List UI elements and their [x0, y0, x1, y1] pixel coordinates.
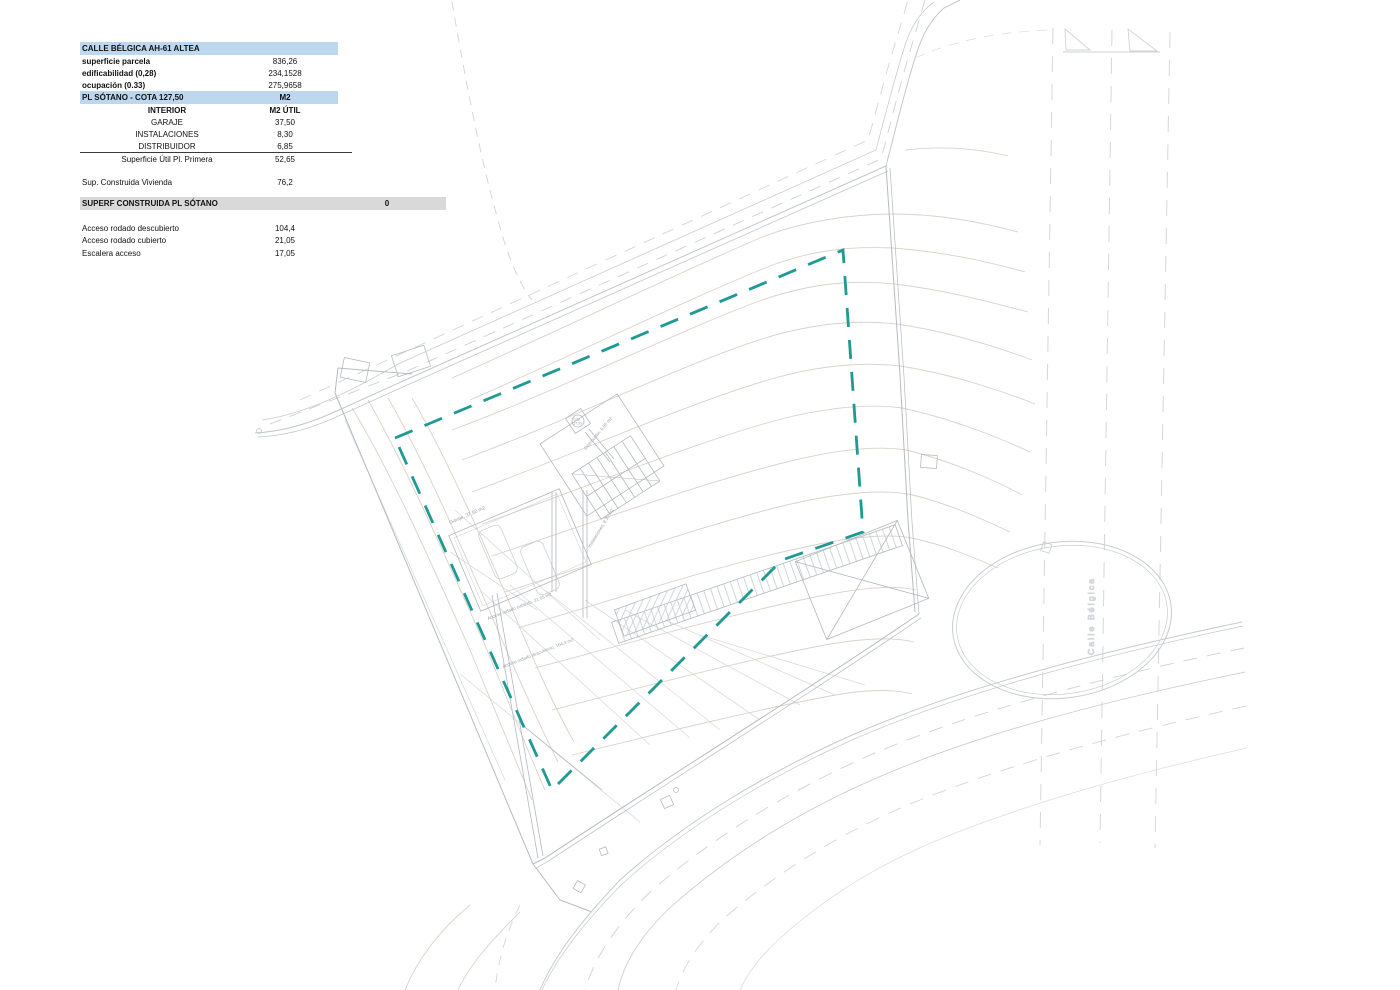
- row-value: 275,9658: [235, 81, 335, 90]
- distributor-label: Distribuidor, 6,85 m2: [583, 415, 614, 450]
- row-label: ocupación (0.33): [82, 81, 254, 90]
- garage-outline: [449, 489, 592, 611]
- table-row-distribuidor: DISTRIBUIDOR 6,85: [80, 140, 338, 152]
- access-covered-label: Acceso rodado cubierto, 21,05 m2: [487, 592, 553, 621]
- building-basement: [449, 394, 929, 858]
- row-label: Superficie Útil Pl. Primera: [80, 155, 254, 164]
- table-row-pl-sotano: PL SÓTANO - COTA 127,50 M2: [80, 91, 338, 104]
- row-label: INSTALACIONES: [80, 130, 254, 139]
- row-label: Escalera acceso: [82, 249, 254, 258]
- access-open-label: Acceso rodado descubierto, 104,4 m2: [502, 637, 575, 669]
- cota-label-bottom: 127,50: [572, 422, 582, 426]
- table-row-instalaciones: INSTALACIONES 8,30: [80, 128, 338, 140]
- table-row-superficie-parcela: superficie parcela 836,26: [80, 55, 338, 67]
- table-row-escalera-acceso: Escalera acceso 17,05: [80, 247, 338, 259]
- table-row-title: CALLE BÉLGICA AH-61 ALTEA: [80, 42, 338, 55]
- row-value: 8,30: [235, 130, 335, 139]
- row-value: 52,65: [235, 155, 335, 164]
- driveway-edges: [492, 593, 602, 858]
- row-label: edificabilidad (0,28): [82, 69, 254, 78]
- lower-road: [495, 622, 1247, 990]
- table-row-ocupacion: ocupación (0.33) 275,9658: [80, 79, 338, 91]
- row-label: PL SÓTANO - COTA 127,50: [82, 93, 254, 102]
- table-row-superf-construida: SUPERF CONSTRUIDA PL SÓTANO 0: [80, 197, 446, 210]
- slope-lines: [345, 420, 865, 822]
- row-label: Acceso rodado cubierto: [82, 236, 254, 245]
- row-value: 0: [380, 199, 394, 208]
- row-value: 37,50: [235, 118, 335, 127]
- row-label: Acceso rodado descubierto: [82, 224, 254, 233]
- table-row-garaje: GARAJE 37,50: [80, 116, 338, 128]
- row-value: 234,1528: [235, 69, 335, 78]
- row-value: 21,05: [235, 236, 335, 245]
- cul-de-sac-oval: [942, 527, 1182, 712]
- row-label: GARAJE: [80, 118, 254, 127]
- table-row-acceso-descubierto: Acceso rodado descubierto 104,4: [80, 222, 338, 234]
- row-label: INTERIOR: [80, 106, 254, 115]
- table-row-construida-vivienda: Sup. Construida Vivienda 76,2: [80, 176, 338, 188]
- row-value: 104,4: [235, 224, 335, 233]
- row-value: M2 ÚTIL: [235, 106, 335, 115]
- row-value: 836,26: [235, 57, 335, 66]
- row-label: superficie parcela: [82, 57, 254, 66]
- site-plan-sheet: Garaje, 37,50 m2 Distribuidor, 6,85 m2 I…: [0, 0, 1400, 990]
- row-label: DISTRIBUIDOR: [80, 142, 254, 151]
- survey-dashed-line: [452, 2, 532, 300]
- row-label: SUPERF CONSTRUIDA PL SÓTANO: [82, 199, 372, 208]
- stair-unit: [540, 394, 664, 519]
- installations-shaft: [552, 490, 587, 618]
- row-value: M2: [235, 93, 335, 102]
- calle-belgica-road: Calle Bélgica: [942, 28, 1182, 848]
- access-ramp: [612, 525, 903, 643]
- table-row-acceso-cubierto: Acceso rodado cubierto 21,05: [80, 235, 338, 247]
- row-value: 17,05: [235, 249, 335, 258]
- row-value: 6,85: [235, 142, 335, 151]
- row-label: CALLE BÉLGICA AH-61 ALTEA: [82, 44, 254, 53]
- row-label: Sup. Construida Vivienda: [82, 178, 254, 187]
- row-value: 76,2: [235, 178, 335, 187]
- table-row-superficie-util: Superficie Útil Pl. Primera 52,65: [80, 152, 352, 165]
- table-row-interior: INTERIOR M2 ÚTIL: [80, 104, 338, 116]
- street-name-label: Calle Bélgica: [1086, 577, 1096, 655]
- table-row-edificabilidad: edificabilidad (0,28) 234,1528: [80, 67, 338, 79]
